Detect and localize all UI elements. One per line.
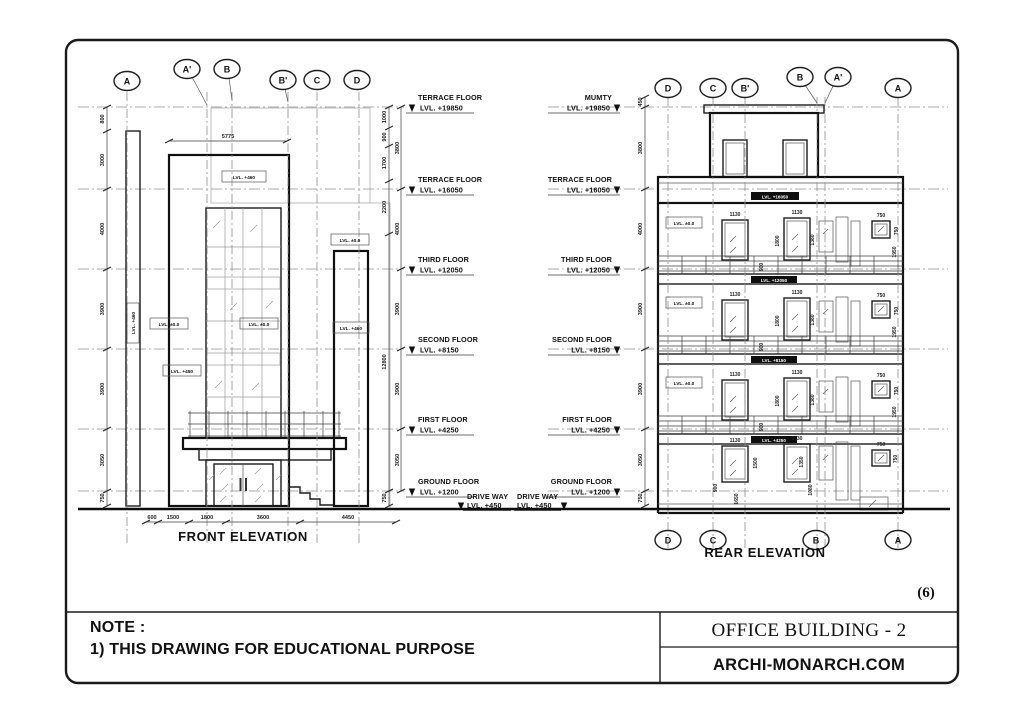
level-tag: LVL. ±0.0 [674,301,695,307]
dim-text: 1000 [382,111,388,123]
dim-text: 1350 [799,456,805,467]
level-name: SECOND FLOOR [552,335,613,344]
dim-text: 3900 [100,303,106,315]
dim-text: 1130 [792,290,803,296]
level-value: LVL. +1200 [571,488,610,497]
level-value: LVL. +16050 [420,186,463,195]
level-value: LVL. +16050 [567,186,610,195]
level-tag: LVL. +460 [340,326,363,332]
dim-text: 4000 [638,223,644,235]
level-tag: LVL. +460 [233,175,256,181]
level-name: MUMTY [585,93,612,102]
dim-text: 1380 [810,234,816,245]
dim-text: 750 [877,213,886,219]
level-name: TERRACE FLOOR [418,93,483,102]
grid-bubble-label: A [895,536,902,546]
dim-text: 1380 [810,394,816,405]
dim-text: 1130 [730,372,741,378]
grid-bubble-label: B [224,65,231,75]
level-value: LVL. +8150 [571,346,610,355]
front-elevation-title: FRONT ELEVATION [178,529,308,544]
grid-bubble-label: C [710,84,717,94]
level-name: DRIVE WAY [467,492,508,501]
dim-text: 1500 [753,457,759,468]
dim-text: 1800 [775,395,781,406]
level-name: GROUND FLOOR [418,477,480,486]
dim-text: 900 [759,343,765,352]
slab-band-label: LVL. +8150 [762,358,786,363]
dim-text: 750 [877,442,886,448]
level-value: LVL. +4250 [571,426,610,435]
website-label: ARCHI-MONARCH.COM [713,656,905,674]
slab-band-label: LVL. +4250 [762,438,786,443]
level-name: GROUND FLOOR [551,477,613,486]
dim-text: 900 [713,484,719,493]
dim-text: 750 [877,293,886,299]
dim-text: 3800 [638,142,644,154]
level-tag: LVL. +450 [171,369,194,375]
dim-text: 600 [147,515,156,521]
note-line: 1) THIS DRAWING FOR EDUCATIONAL PURPOSE [90,641,475,658]
grid-bubble-label: B [797,73,804,83]
dim-text: 750 [638,493,644,502]
dim-text: 750 [893,455,899,464]
page-border [66,40,958,683]
dim-text: 3900 [638,303,644,315]
dim-text: 1800 [775,235,781,246]
dim-text: 900 [759,423,765,432]
dim-text: 2200 [382,201,388,213]
dim-text: 3900 [395,383,401,395]
drawing-sheet: A A' B B' C D LVL. +460 LVL. +460 LVL. ±… [0,0,1024,724]
dim-text: 750 [877,373,886,379]
dim-text: 3800 [395,142,401,154]
level-value: LVL. +4250 [420,426,459,435]
level-value: LVL. +12050 [567,266,610,275]
dim-text: 3000 [100,154,106,166]
grid-bubble-label: D [354,76,361,86]
level-tag: LVL. ±0.0 [249,322,270,328]
dim-text: 800 [100,114,106,123]
dim-text: 3900 [395,303,401,315]
dim-text: 1650 [734,493,740,504]
dim-text: 1130 [792,436,803,442]
dim-text: 1800 [201,515,213,521]
dim-text: 750 [894,387,900,396]
level-name: DRIVE WAY [517,492,558,501]
level-tag: LVL. ±0.0 [340,238,361,244]
dim-text: 3050 [395,454,401,466]
grid-bubble-label: A' [183,65,192,75]
dim-text: 4000 [395,223,401,235]
grid-bubble-label: A' [834,73,843,83]
dim-text: 750 [894,307,900,316]
dim-text: 3900 [100,383,106,395]
dim-text: 1080 [808,484,814,495]
dim-text: 1380 [810,314,816,325]
level-value: LVL. +8150 [420,346,459,355]
level-tag: LVL. ±0.0 [674,381,695,387]
grid-bubble-label: A [124,77,131,87]
dim-text: 1800 [775,315,781,326]
rear-elevation-title: REAR ELEVATION [704,545,825,560]
dim-text: 3900 [638,383,644,395]
dim-text: 1950 [892,326,898,337]
level-name: THIRD FLOOR [418,255,470,264]
grid-bubble-label: D [665,84,672,94]
dim-text: 450 [638,97,644,106]
dim-text: 1130 [730,212,741,218]
project-title: OFFICE BUILDING - 2 [712,620,907,641]
dim-text: 1950 [892,406,898,417]
elevation-drawing: A A' B B' C D LVL. +460 LVL. +460 LVL. ±… [0,0,1024,724]
grid-bubble-label: D [665,536,672,546]
page-number: (6) [917,585,935,601]
dim-text: 4450 [342,515,354,521]
level-value: LVL. +19850 [567,104,610,113]
dim-text: 3050 [100,454,106,466]
level-tag: LVL. ±0.0 [159,322,180,328]
level-tag: LVL. ±0.0 [674,221,695,227]
dim-text: 1130 [730,292,741,298]
level-name: FIRST FLOOR [562,415,612,424]
level-name: FIRST FLOOR [418,415,468,424]
dim-text: 750 [382,493,388,502]
level-name: THIRD FLOOR [561,255,613,264]
dim-text: 1950 [892,246,898,257]
grid-bubble-label: B' [741,84,750,94]
dim-text: 12800 [382,354,388,370]
level-name: TERRACE FLOOR [418,175,483,184]
dim-text: 1500 [167,515,179,521]
slab-band-label: LVL. +12050 [761,278,788,283]
level-value: LVL. +1200 [420,488,459,497]
dim-text: 750 [100,493,106,502]
level-value: LVL. +19850 [420,104,463,113]
dim-text: 3050 [638,454,644,466]
dim-text: 1700 [382,157,388,169]
grid-bubble-label: B' [279,76,288,86]
dim-text: 1130 [792,210,803,216]
level-tag: LVL. +460 [131,312,137,335]
slab-band-label: LVL. +16050 [762,195,789,200]
level-name: TERRACE FLOOR [548,175,613,184]
dim-text: 3600 [257,515,269,521]
note-title: NOTE : [90,619,145,636]
dim-text: 900 [382,132,388,141]
grid-bubble-label: C [710,536,717,546]
grid-bubble-label: B [813,536,820,546]
dim-text: 1130 [730,438,741,444]
level-value: LVL. +12050 [420,266,463,275]
grid-bubble-label: C [314,76,321,86]
dim-text: 750 [894,227,900,236]
dim-text: 900 [759,263,765,272]
dim-text: 4000 [100,223,106,235]
level-name: SECOND FLOOR [418,335,479,344]
grid-bubble-label: A [895,84,902,94]
dim-text: 1130 [792,370,803,376]
dim-text: 5775 [222,134,234,140]
